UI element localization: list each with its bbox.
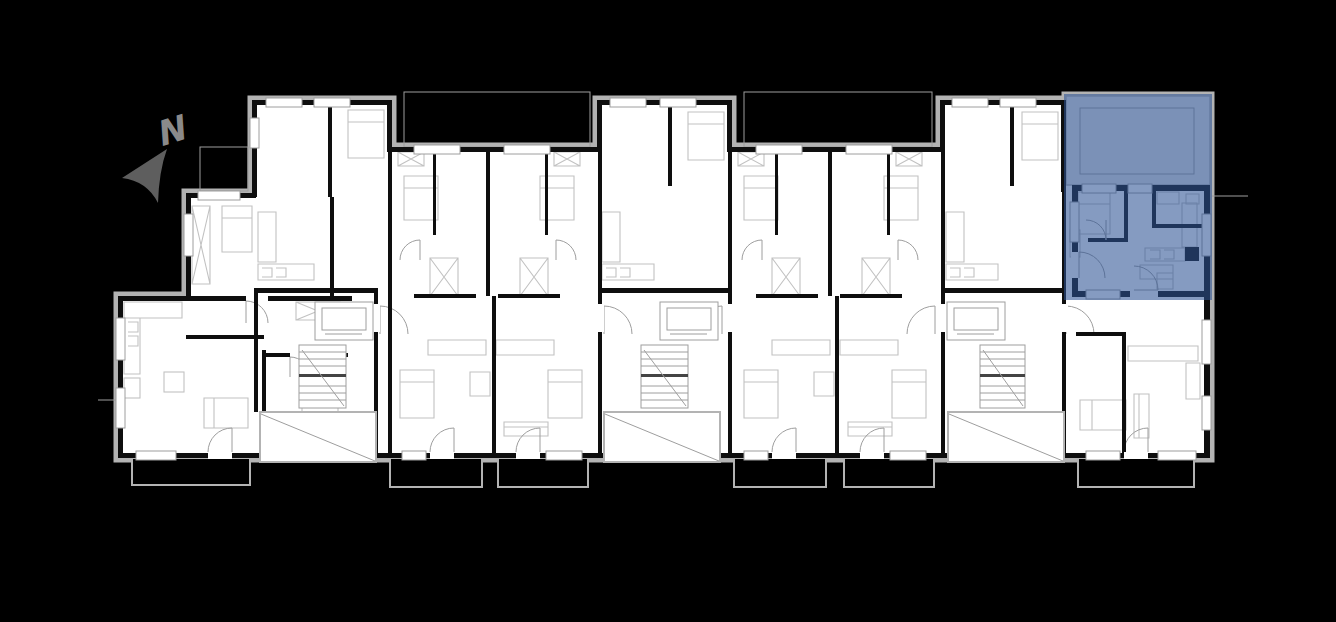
window <box>116 388 125 428</box>
window <box>136 451 176 460</box>
wall-segment <box>597 100 602 151</box>
bed <box>548 370 582 418</box>
party-wall <box>598 151 602 453</box>
window <box>1000 98 1036 107</box>
window <box>184 214 193 256</box>
window <box>1202 396 1211 430</box>
window <box>1202 320 1211 364</box>
party-wall <box>388 151 392 453</box>
party-wall <box>486 147 490 296</box>
bed <box>204 398 248 428</box>
wall-segment <box>387 100 392 151</box>
interior-wall <box>186 296 246 301</box>
window <box>1158 451 1196 460</box>
interior-wall <box>328 104 332 197</box>
party-wall <box>941 151 945 453</box>
highlighted-unit-overlay[interactable] <box>1064 94 1212 300</box>
bed <box>1022 112 1058 160</box>
wall-segment <box>118 296 190 301</box>
core-wall <box>602 288 728 293</box>
interior-wall <box>545 147 548 235</box>
door-gap <box>724 304 734 332</box>
bed <box>1080 400 1126 430</box>
interior-wall <box>1010 104 1014 186</box>
window <box>198 191 240 200</box>
door-gap <box>1124 452 1148 459</box>
window <box>660 98 696 107</box>
bed <box>744 370 778 418</box>
interior-wall <box>498 294 560 298</box>
window <box>314 98 350 107</box>
balcony <box>390 458 482 487</box>
bed <box>744 176 778 220</box>
balcony <box>1078 458 1194 487</box>
core-wall <box>945 288 1063 293</box>
window <box>890 451 926 460</box>
window <box>414 145 460 154</box>
window <box>610 98 646 107</box>
door-gap <box>772 452 796 459</box>
party-wall <box>828 147 832 296</box>
window <box>744 451 768 460</box>
window <box>756 145 802 154</box>
floor-plan-screen: N <box>0 0 1336 622</box>
window <box>846 145 892 154</box>
balcony <box>132 458 250 485</box>
interior-wall <box>756 294 818 298</box>
bed <box>688 112 724 160</box>
party-wall <box>835 296 839 453</box>
interior-wall <box>262 353 290 357</box>
interior-wall <box>840 294 902 298</box>
interior-wall <box>268 296 352 301</box>
door-gap <box>430 452 454 459</box>
door-gap <box>594 304 604 332</box>
window <box>116 318 125 360</box>
interior-wall <box>414 294 476 298</box>
door-gap <box>208 452 232 459</box>
interior-wall <box>775 147 778 235</box>
core-wall <box>254 288 258 412</box>
door-gap <box>1058 304 1068 332</box>
core-wall <box>258 288 376 293</box>
bed <box>892 370 926 418</box>
interior-wall <box>668 104 672 186</box>
bed <box>400 370 434 418</box>
party-wall <box>728 151 732 453</box>
wall-segment <box>940 100 945 151</box>
window <box>1086 451 1120 460</box>
bed <box>348 110 384 158</box>
door-gap <box>860 452 884 459</box>
interior-wall <box>433 147 436 235</box>
door-gap <box>937 304 947 332</box>
wall-segment <box>727 100 732 151</box>
interior-wall <box>186 335 264 339</box>
door-gap <box>516 452 540 459</box>
balcony <box>498 458 588 487</box>
interior-wall <box>1076 332 1126 336</box>
window <box>250 118 259 148</box>
balcony <box>844 458 934 487</box>
bed <box>222 206 252 252</box>
bed <box>404 176 438 220</box>
window <box>504 145 550 154</box>
interior-wall <box>330 197 334 296</box>
floor-plan-canvas: N <box>0 0 1336 622</box>
interior-wall <box>887 147 890 235</box>
party-wall <box>492 296 496 453</box>
balcony <box>734 458 826 487</box>
window <box>952 98 988 107</box>
window <box>402 451 426 460</box>
interior-wall <box>1122 332 1126 453</box>
window <box>546 451 582 460</box>
window <box>266 98 302 107</box>
